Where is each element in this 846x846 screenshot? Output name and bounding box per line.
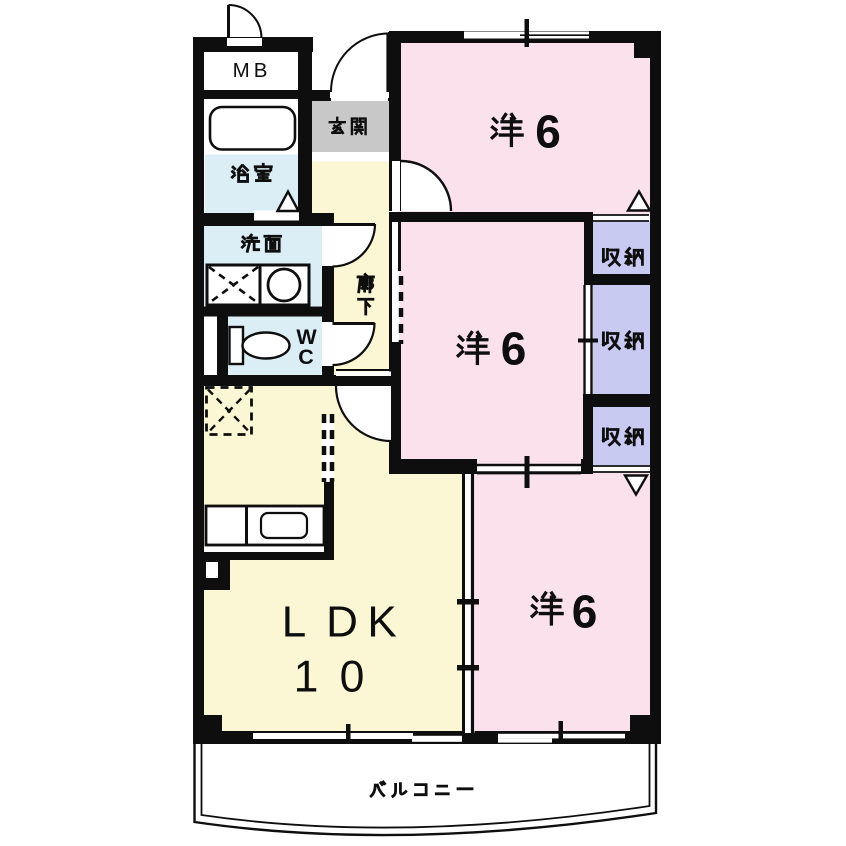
svg-text:L: L	[282, 598, 306, 647]
svg-text:6: 6	[535, 106, 561, 158]
svg-text:6: 6	[501, 323, 527, 375]
svg-text:MB: MB	[233, 59, 272, 82]
svg-text:C: C	[298, 345, 314, 369]
svg-text:D: D	[326, 598, 358, 647]
svg-text:K: K	[367, 598, 396, 647]
svg-text:0: 0	[340, 653, 365, 702]
svg-text:1: 1	[294, 653, 319, 702]
svg-text:6: 6	[572, 586, 598, 638]
